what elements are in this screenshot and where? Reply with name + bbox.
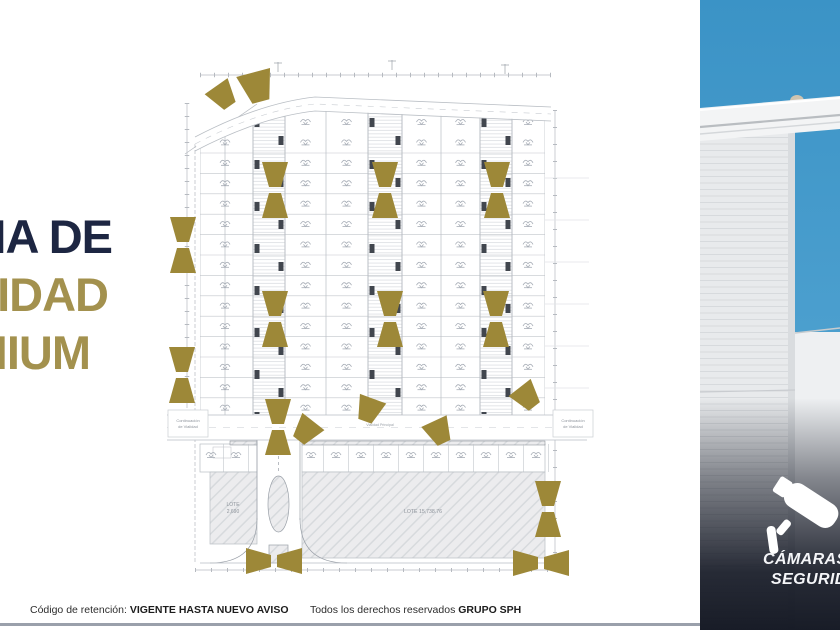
footer-rights: Todos los derechos reservados GRUPO SPH — [310, 604, 521, 616]
lot-right-label: LOTE 15,738.76 — [404, 509, 442, 515]
plan-lot-grid — [200, 98, 545, 415]
road-label-left-1: Continuación — [176, 418, 199, 423]
lot-left — [210, 472, 257, 544]
title-line-3: PREMIUM — [0, 329, 90, 376]
road-label-left-2: de Vialidad — [178, 424, 198, 429]
lot-right — [302, 472, 545, 558]
lot-left-label-1: LOTE — [226, 502, 240, 508]
badge-line-1: CÁMARAS DE — [763, 551, 840, 569]
plan-vertical-roads — [253, 106, 512, 415]
road-label-right-1: Continuación — [561, 418, 584, 423]
footer-rights-label: Todos los derechos reservados — [310, 604, 458, 616]
footer-rights-value: GRUPO SPH — [458, 604, 521, 616]
building-photo: CÁMARAS DE SEGURIDAD — [700, 0, 840, 630]
slide-title: SISTEMA DE SEGURIDAD PREMIUM — [0, 205, 120, 395]
road-label-center: Vialidad Principal — [366, 423, 394, 427]
site-plan-drawing: Continuación de Vialidad Continuación de… — [165, 58, 595, 583]
plan-small-lot-row — [200, 441, 549, 472]
badge-line-2: SEGURIDAD — [771, 571, 840, 589]
building-photo-art — [700, 0, 840, 630]
bottom-divider — [0, 623, 700, 626]
footer-retention: Código de retención: VIGENTE HASTA NUEVO… — [30, 604, 289, 616]
road-label-right-2: de Vialidad — [563, 424, 583, 429]
footer-retention-label: Código de retención: — [30, 604, 130, 616]
lot-left-label-2: 2,690 — [227, 509, 240, 515]
title-line-2: SEGURIDAD — [0, 271, 108, 318]
footer-retention-value: VIGENTE HASTA NUEVO AVISO — [130, 604, 289, 616]
site-plan: Continuación de Vialidad Continuación de… — [165, 58, 595, 583]
title-line-1: SISTEMA DE — [0, 213, 112, 260]
